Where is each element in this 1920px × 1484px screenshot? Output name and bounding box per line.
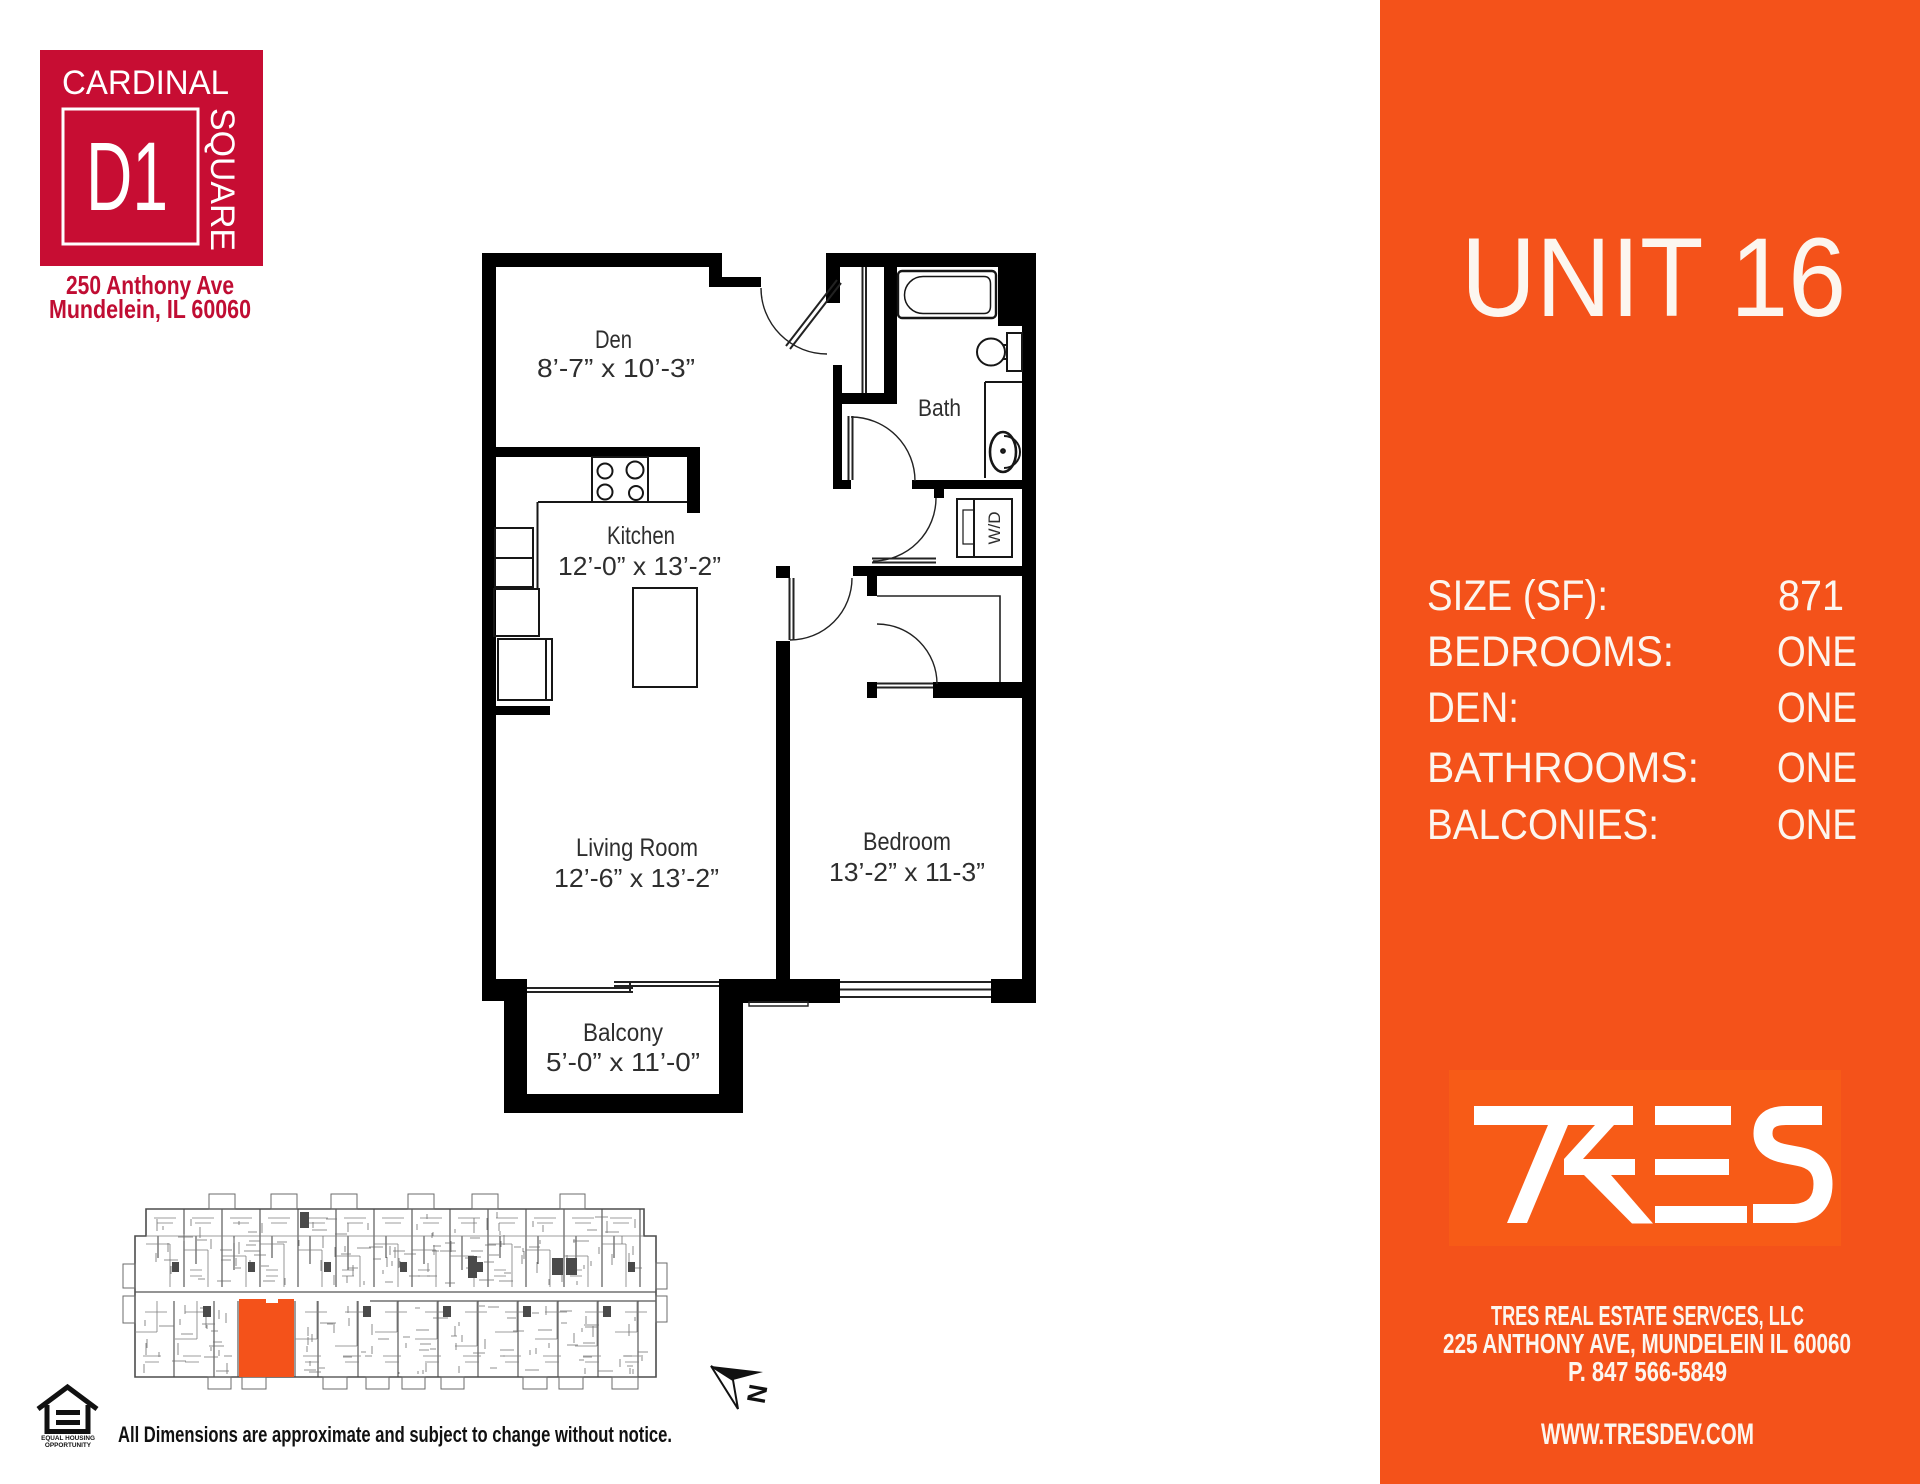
svg-text:Bath: Bath — [918, 395, 961, 422]
svg-text:ONE: ONE — [1777, 801, 1857, 849]
svg-text:12’-0” x 13’-2”: 12’-0” x 13’-2” — [558, 551, 721, 581]
svg-text:TRES REAL ESTATE SERVCES, LLC: TRES REAL ESTATE SERVCES, LLC — [1491, 1300, 1804, 1331]
svg-text:DEN:: DEN: — [1427, 684, 1519, 732]
svg-text:ONE: ONE — [1777, 744, 1857, 792]
svg-text:WWW.TRESDEV.COM: WWW.TRESDEV.COM — [1541, 1418, 1754, 1451]
svg-text:ONE: ONE — [1777, 628, 1857, 676]
svg-text:EQUAL HOUSING: EQUAL HOUSING — [41, 1435, 95, 1442]
svg-text:All Dimensions are approximate: All Dimensions are approximate and subje… — [118, 1422, 672, 1447]
svg-text:225 ANTHONY AVE, MUNDELEIN IL: 225 ANTHONY AVE, MUNDELEIN IL 60060 — [1443, 1328, 1851, 1359]
svg-text:UNIT 16: UNIT 16 — [1461, 215, 1846, 340]
svg-text:D1: D1 — [86, 122, 168, 231]
svg-text:P. 847 566-5849: P. 847 566-5849 — [1568, 1356, 1727, 1387]
svg-text:Living Room: Living Room — [576, 834, 698, 862]
svg-text:Bedroom: Bedroom — [863, 828, 951, 856]
svg-text:8’-7” x 10’-3”: 8’-7” x 10’-3” — [537, 353, 695, 383]
svg-text:CARDINAL: CARDINAL — [62, 64, 229, 102]
svg-text:BEDROOMS:: BEDROOMS: — [1427, 628, 1674, 676]
svg-text:OPPORTUNITY: OPPORTUNITY — [45, 1442, 92, 1449]
svg-text:SQUARE: SQUARE — [203, 108, 241, 251]
svg-text:13’-2” x 11-3”: 13’-2” x 11-3” — [829, 857, 985, 887]
svg-text:Den: Den — [595, 326, 632, 354]
svg-text:SIZE (SF):: SIZE (SF): — [1427, 572, 1608, 620]
svg-text:871: 871 — [1778, 572, 1844, 620]
svg-text:N: N — [741, 1382, 774, 1406]
svg-text:Kitchen: Kitchen — [607, 522, 675, 550]
svg-text:5’-0” x 11’-0”: 5’-0” x 11’-0” — [546, 1047, 700, 1077]
svg-text:ONE: ONE — [1777, 684, 1857, 732]
svg-text:12’-6” x 13’-2”: 12’-6” x 13’-2” — [554, 863, 719, 893]
svg-text:Balcony: Balcony — [583, 1019, 663, 1047]
svg-text:BATHROOMS:: BATHROOMS: — [1427, 744, 1699, 792]
svg-text:W/D: W/D — [985, 511, 1004, 544]
svg-text:Mundelein, IL 60060: Mundelein, IL 60060 — [49, 294, 251, 324]
svg-text:BALCONIES:: BALCONIES: — [1427, 801, 1659, 849]
